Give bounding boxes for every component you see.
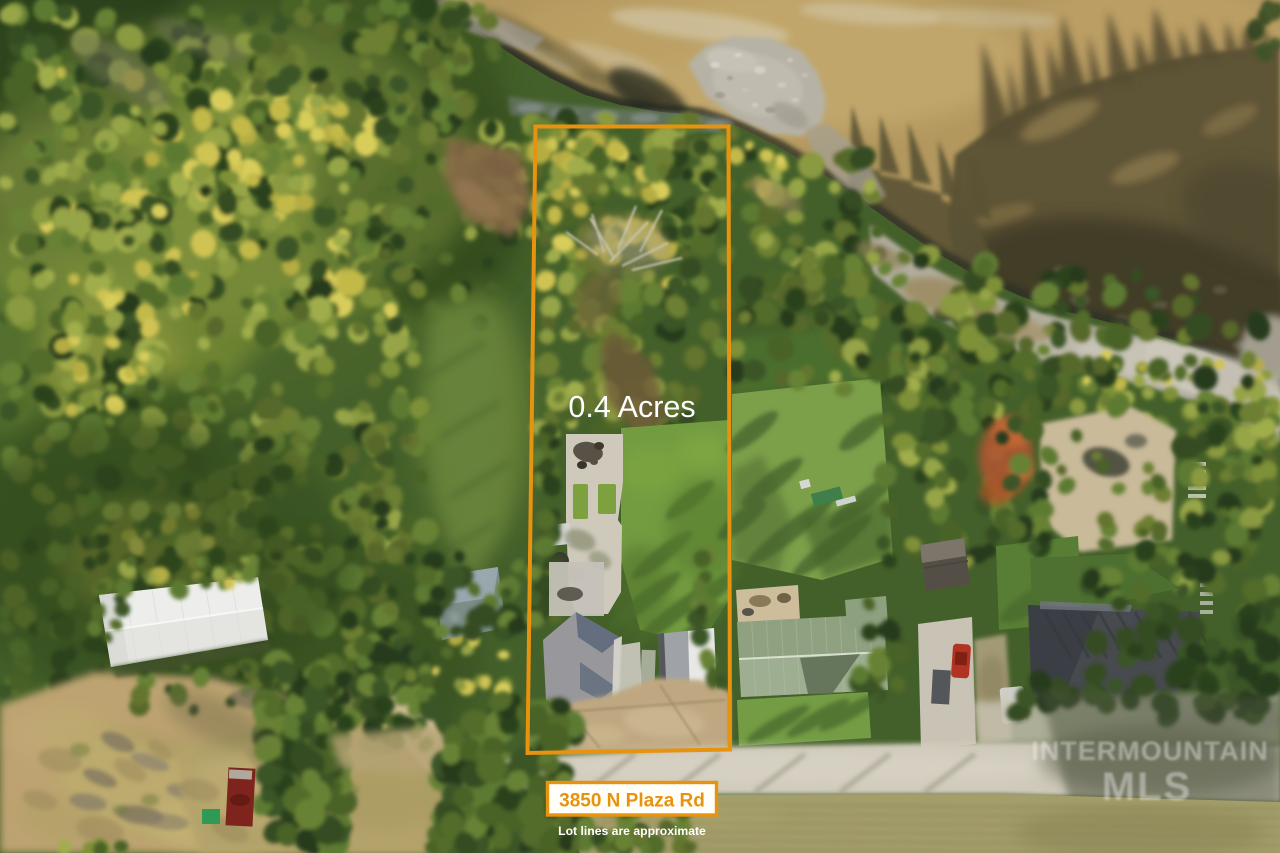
svg-text:Lot lines are approximate: Lot lines are approximate <box>558 824 706 838</box>
svg-text:3850 N Plaza Rd: 3850 N Plaza Rd <box>559 791 705 812</box>
svg-text:INTERMOUNTAIN: INTERMOUNTAIN <box>1031 736 1268 766</box>
svg-text:MLS: MLS <box>1102 765 1192 809</box>
svg-text:0.4 Acres: 0.4 Acres <box>568 390 695 424</box>
